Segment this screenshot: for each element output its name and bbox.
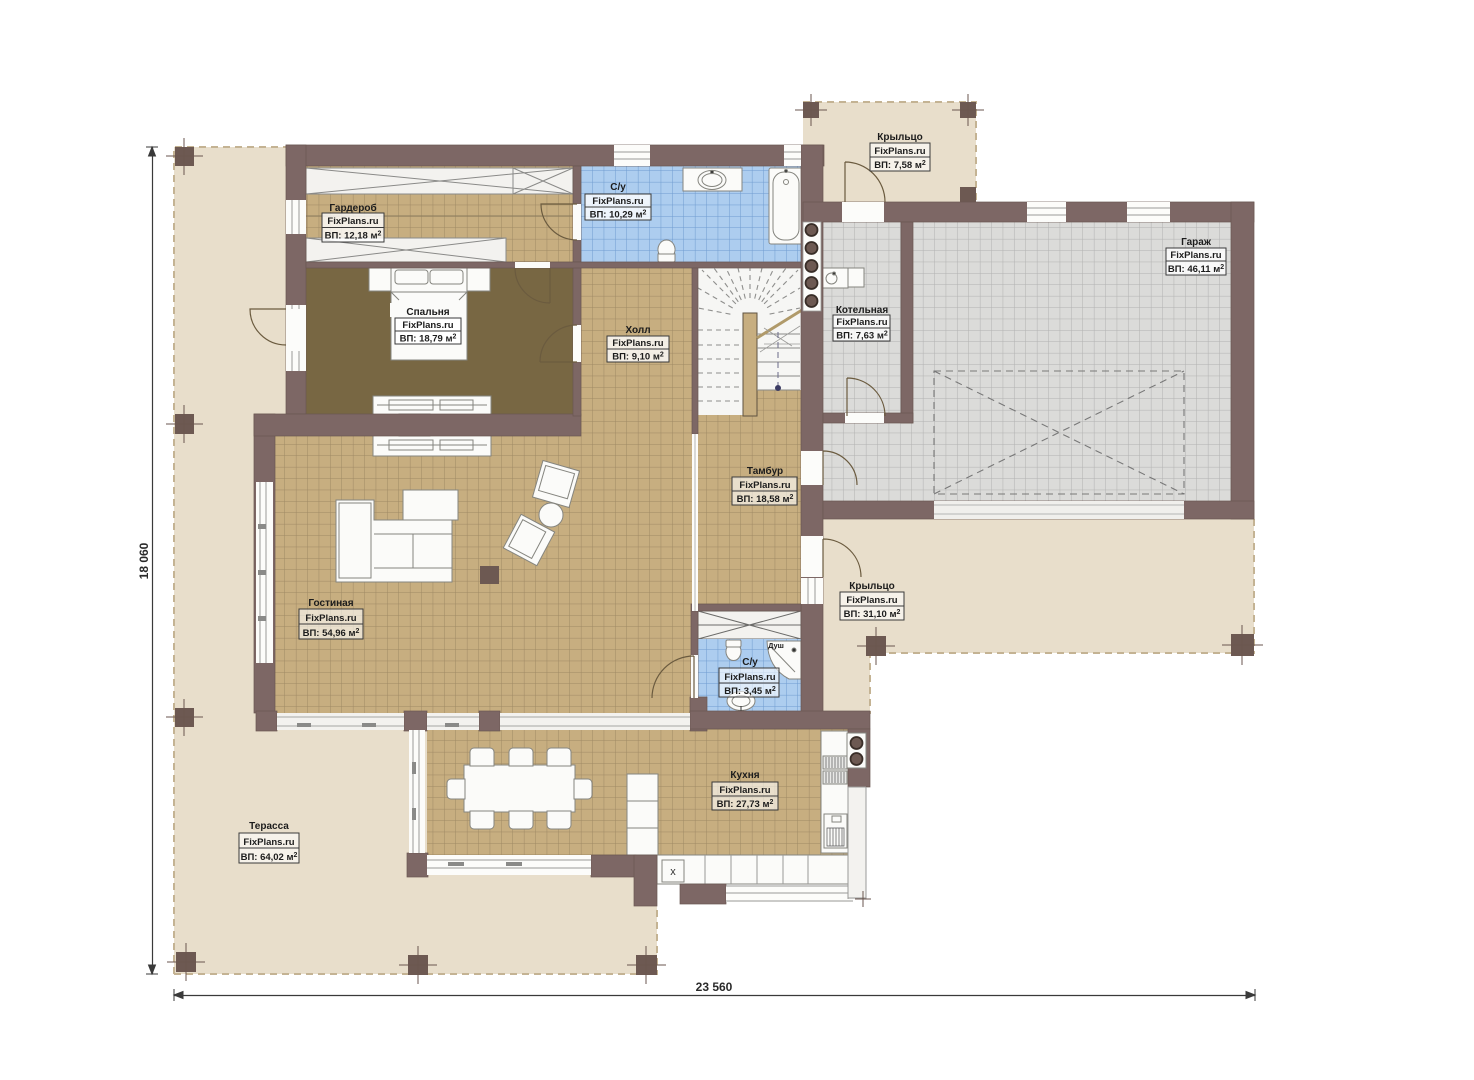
svg-text:Тамбур: Тамбур [747, 465, 783, 477]
svg-text:ВП: 31,10 м2: ВП: 31,10 м2 [844, 609, 901, 620]
svg-text:23 560: 23 560 [696, 980, 733, 994]
svg-text:x: x [670, 866, 676, 878]
svg-text:Терасса: Терасса [249, 821, 289, 832]
svg-text:Гардероб: Гардероб [329, 202, 376, 214]
svg-text:ВП: 18,58 м2: ВП: 18,58 м2 [737, 494, 794, 505]
svg-text:Гараж: Гараж [1181, 237, 1212, 248]
svg-text:ВП: 3,45 м2: ВП: 3,45 м2 [724, 686, 776, 697]
svg-text:FixPlans.ru: FixPlans.ru [305, 613, 356, 624]
svg-text:18 060: 18 060 [137, 542, 151, 579]
svg-text:ВП: 46,11 м2: ВП: 46,11 м2 [1168, 264, 1224, 275]
svg-text:FixPlans.ru: FixPlans.ru [719, 785, 770, 796]
svg-text:Крыльцо: Крыльцо [849, 581, 895, 592]
svg-text:FixPlans.ru: FixPlans.ru [612, 338, 663, 349]
svg-text:Котельная: Котельная [836, 305, 889, 316]
svg-text:FixPlans.ru: FixPlans.ru [1170, 250, 1221, 261]
svg-text:ВП: 18,79 м2: ВП: 18,79 м2 [400, 334, 457, 345]
svg-text:С/у: С/у [742, 657, 758, 668]
svg-text:FixPlans.ru: FixPlans.ru [243, 837, 294, 848]
svg-text:Гостиная: Гостиная [308, 598, 353, 609]
svg-text:Спальня: Спальня [406, 307, 449, 318]
svg-text:ВП: 9,10 м2: ВП: 9,10 м2 [612, 352, 664, 363]
svg-text:ВП: 54,96 м2: ВП: 54,96 м2 [303, 628, 360, 639]
svg-text:Крыльцо: Крыльцо [877, 132, 923, 143]
svg-text:ВП: 7,63 м2: ВП: 7,63 м2 [836, 331, 888, 342]
svg-text:ВП: 10,29 м2: ВП: 10,29 м2 [590, 210, 647, 221]
svg-text:FixPlans.ru: FixPlans.ru [739, 480, 790, 491]
svg-text:FixPlans.ru: FixPlans.ru [874, 146, 925, 157]
svg-text:Холл: Холл [625, 325, 650, 336]
svg-text:Кухня: Кухня [730, 770, 759, 781]
svg-text:FixPlans.ru: FixPlans.ru [724, 672, 775, 683]
svg-text:FixPlans.ru: FixPlans.ru [402, 320, 453, 331]
svg-text:ВП: 27,73 м2: ВП: 27,73 м2 [717, 799, 774, 810]
svg-text:FixPlans.ru: FixPlans.ru [846, 595, 897, 606]
svg-text:Душ: Душ [768, 641, 784, 650]
svg-text:С/у: С/у [610, 182, 626, 193]
svg-text:ВП: 64,02 м2: ВП: 64,02 м2 [241, 852, 298, 863]
svg-text:FixPlans.ru: FixPlans.ru [592, 196, 643, 207]
svg-text:ВП: 7,58 м2: ВП: 7,58 м2 [874, 160, 926, 171]
svg-text:ВП: 12,18 м2: ВП: 12,18 м2 [325, 231, 382, 242]
svg-text:FixPlans.ru: FixPlans.ru [327, 216, 378, 227]
svg-text:FixPlans.ru: FixPlans.ru [836, 317, 887, 328]
